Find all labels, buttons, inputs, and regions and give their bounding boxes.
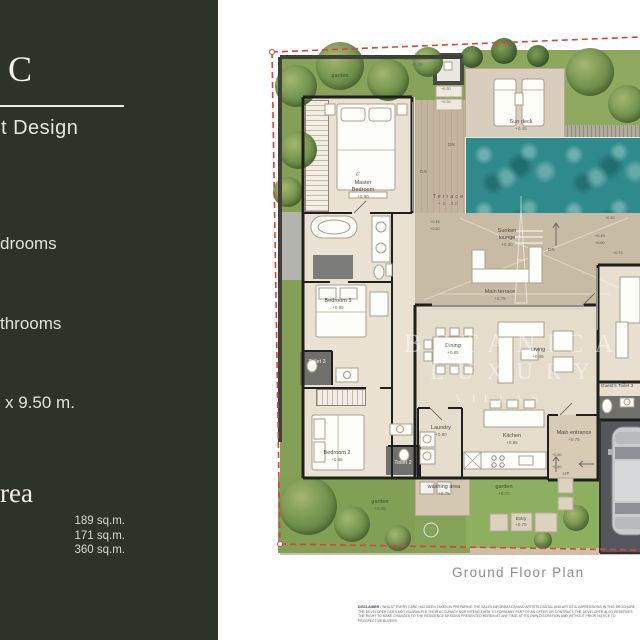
- room-name: Toilet 3: [302, 359, 332, 366]
- palm-tree: [461, 46, 483, 68]
- room-level: +0.85: [494, 440, 530, 446]
- watermark-line3: VILLAS: [455, 391, 546, 406]
- label-laundry: Laundry +0.80: [423, 425, 459, 438]
- room-name: garden: [362, 499, 398, 506]
- tree: [279, 477, 337, 535]
- level-marker: +0.30: [441, 100, 451, 104]
- plan-caption: Ground Floor Plan: [452, 565, 622, 580]
- room-name: Sunken lounge: [492, 228, 522, 242]
- room-level: +0.75: [506, 522, 536, 528]
- watermark-line1: BOTANICA: [404, 329, 624, 359]
- label-garden-inner: garden +0.70: [486, 484, 522, 497]
- level-marker: +0.30: [441, 87, 451, 91]
- room-name: Kitchen: [494, 433, 530, 440]
- room-level: +0.85: [318, 305, 358, 311]
- tree: [316, 42, 364, 90]
- up-marker: UP: [563, 471, 570, 476]
- room-level: +0.45: [362, 506, 398, 512]
- room-name: Master Bedroom: [345, 180, 381, 194]
- room-level: +0.45: [501, 126, 541, 132]
- label-guest-toilet: Guest's Toilet 3: [600, 384, 634, 390]
- room-name: Bedroom 2: [317, 450, 357, 457]
- room-name: Guest's Toilet 3: [600, 384, 634, 390]
- room-level: +0.90: [345, 194, 381, 200]
- swimming-pool: [465, 137, 640, 215]
- level-marker: +0.45: [430, 220, 440, 224]
- room-level: +0.70: [486, 491, 522, 497]
- area-value: 189 sq.m.: [0, 514, 125, 529]
- room-level: +0.85: [317, 457, 357, 463]
- sidebar-panel: C t Design drooms throoms x 9.50 m. rea …: [0, 0, 218, 640]
- label-terrace: Terrace +0.30: [420, 194, 478, 207]
- room-name: garden: [322, 73, 358, 80]
- room-level: +0.30: [402, 62, 432, 68]
- brochure-page: C t Design drooms throoms x 9.50 m. rea …: [0, 0, 640, 640]
- tree: [279, 131, 317, 169]
- label-kitchen: Kitchen +0.85: [494, 433, 530, 446]
- label-main-entrance: Main entrance +0.75: [556, 430, 592, 443]
- dn-marker: DN: [420, 169, 427, 174]
- level-marker: +0.60: [552, 453, 562, 457]
- dn-marker: DN: [548, 247, 555, 252]
- tree: [273, 177, 303, 207]
- room-name: Outdoor shower: [402, 57, 432, 62]
- watermark-line2: LUXURY: [430, 359, 603, 385]
- tree: [563, 505, 589, 531]
- area-heading: rea: [0, 478, 33, 509]
- label-bedroom-3: Bedroom 3 +0.85: [318, 298, 358, 311]
- disclaimer-body: WHILST EVERY CARE HAS BEEN TAKEN IN PREP…: [358, 605, 636, 623]
- toilet3-floor: [300, 352, 332, 385]
- room-level: +0.30: [492, 242, 522, 248]
- entrance-floor: [548, 415, 600, 480]
- level-marker: +0.75: [613, 251, 623, 255]
- feature-bedrooms: drooms: [0, 234, 57, 254]
- design-subtitle: t Design: [1, 117, 78, 140]
- label-main-terrace: Main terrace +0.75: [472, 289, 528, 302]
- room-level: +0.80: [423, 432, 459, 438]
- area-value: 171 sq.m.: [0, 529, 125, 544]
- title-rule: [0, 105, 124, 107]
- room-name: Main entrance: [556, 430, 592, 437]
- gravel-strip: [563, 125, 640, 137]
- label-outdoor-shower: Outdoor shower +0.30: [402, 57, 432, 68]
- label-sun-deck: Sun deck +0.45: [501, 119, 541, 132]
- label-washing-area: washing area +0.75: [422, 484, 466, 497]
- room-name: Laundry: [423, 425, 459, 432]
- label-garden-bottom: garden +0.45: [362, 499, 398, 512]
- tree: [566, 48, 614, 96]
- label-master-bedroom: Master Bedroom +0.90: [345, 180, 381, 200]
- area-value: 360 sq.m.: [0, 543, 125, 558]
- tree: [385, 525, 411, 551]
- label-toilet-2: Toilet 2: [388, 460, 418, 467]
- level-marker: +0.60: [430, 227, 440, 231]
- type-title: C: [8, 48, 32, 90]
- label-entry: Entry +0.75: [506, 516, 536, 528]
- master-shower-floor: [313, 255, 353, 279]
- garden-below-washing: [415, 514, 470, 553]
- carport-zone: [600, 420, 640, 553]
- guest-toilet-floor: [598, 396, 640, 420]
- palm-tree: [527, 45, 549, 67]
- palm-tree: [491, 38, 517, 64]
- dn-marker: DN: [448, 142, 455, 147]
- room-name: Toilet 2: [388, 460, 418, 467]
- room-level: +0.75: [472, 296, 528, 302]
- room-name: washing area: [422, 484, 466, 491]
- area-values: 189 sq.m. 171 sq.m. 360 sq.m.: [0, 514, 125, 558]
- room-name: Bedroom 3: [318, 298, 358, 305]
- label-bedroom-2: Bedroom 2 +0.85: [317, 450, 357, 463]
- label-toilet-3: Toilet 3: [302, 359, 332, 366]
- room-name: garden: [486, 484, 522, 491]
- disclaimer-heading: DISCLAIMER :: [358, 605, 381, 609]
- room-level: +0.30: [420, 201, 478, 207]
- label-garden-top: garden: [322, 73, 358, 80]
- tree: [608, 85, 640, 123]
- disclaimer: DISCLAIMER : WHILST EVERY CARE HAS BEEN …: [358, 605, 640, 623]
- room-level: +0.75: [422, 491, 466, 497]
- room-name: Sun deck: [501, 119, 541, 126]
- level-marker: +0.30: [605, 216, 615, 220]
- tree: [275, 65, 317, 107]
- label-sunken-lounge: Sunken lounge +0.30: [492, 228, 522, 248]
- feature-dimensions: x 9.50 m.: [5, 393, 75, 413]
- bed-size-marker: 6': [356, 172, 360, 178]
- level-marker: +0.60: [595, 241, 605, 245]
- room-name: Main terrace: [472, 289, 528, 296]
- outdoor-shower-court: [282, 212, 303, 280]
- level-marker: +0.40: [552, 465, 562, 469]
- room-level: +0.75: [556, 437, 592, 443]
- room-name: Terrace: [420, 194, 478, 201]
- tree: [534, 531, 552, 549]
- wardrobe-bedroom2: [316, 389, 366, 406]
- level-marker: +0.45: [595, 234, 605, 238]
- feature-bathrooms: throoms: [0, 314, 61, 334]
